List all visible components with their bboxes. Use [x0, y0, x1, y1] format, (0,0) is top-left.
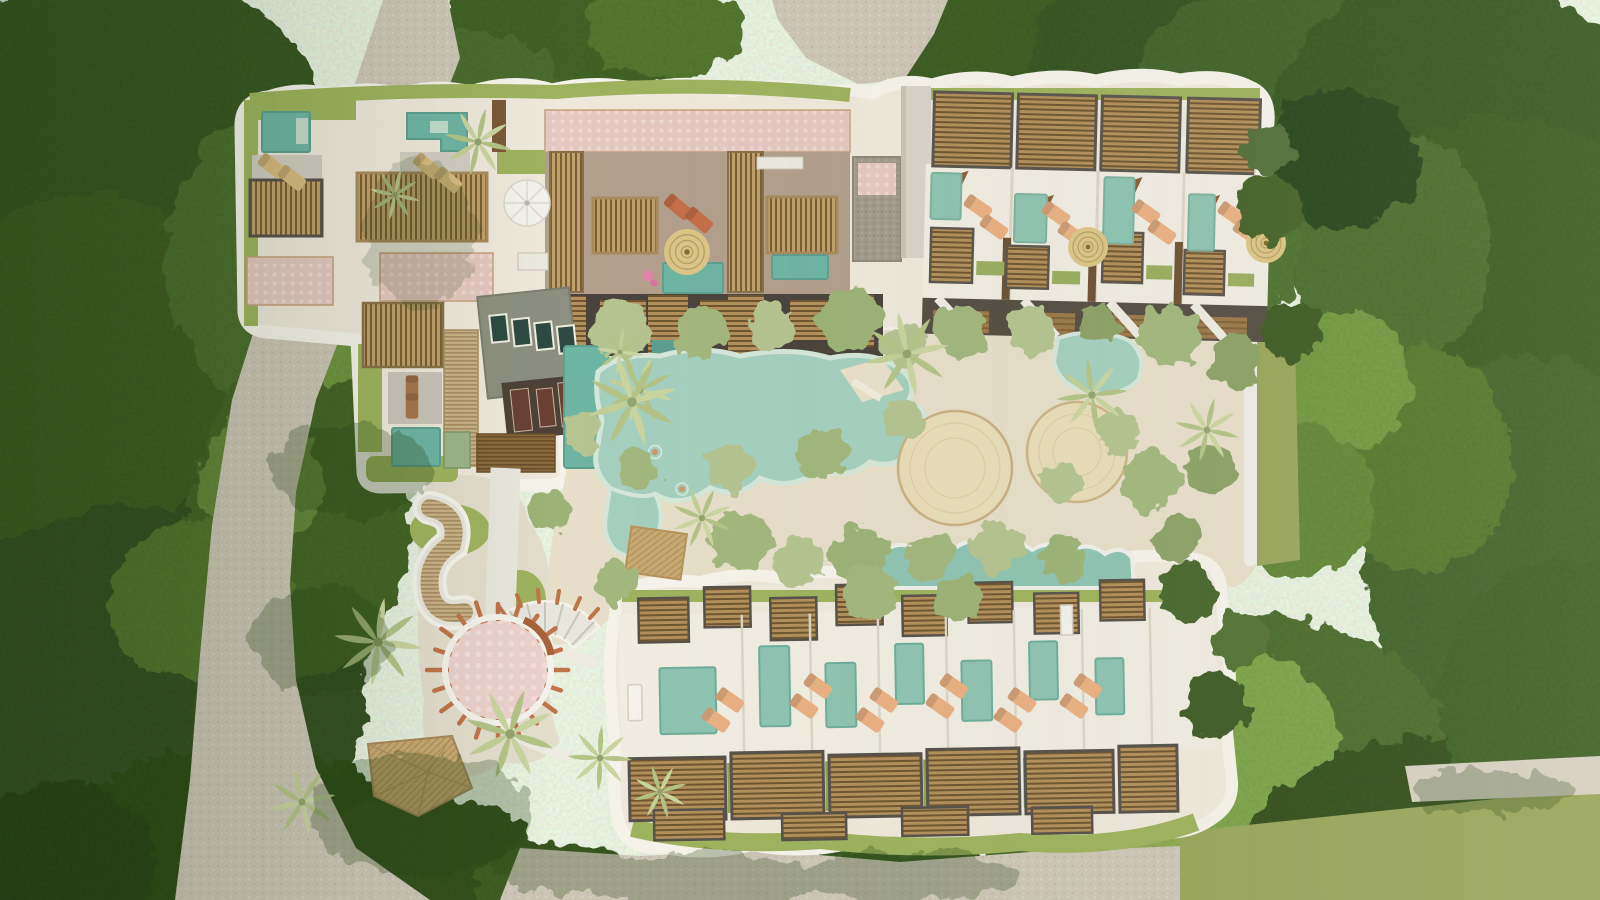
light-grade-overlay — [0, 0, 1600, 900]
aerial-resort-render — [0, 0, 1600, 900]
scene-render — [0, 0, 1600, 900]
